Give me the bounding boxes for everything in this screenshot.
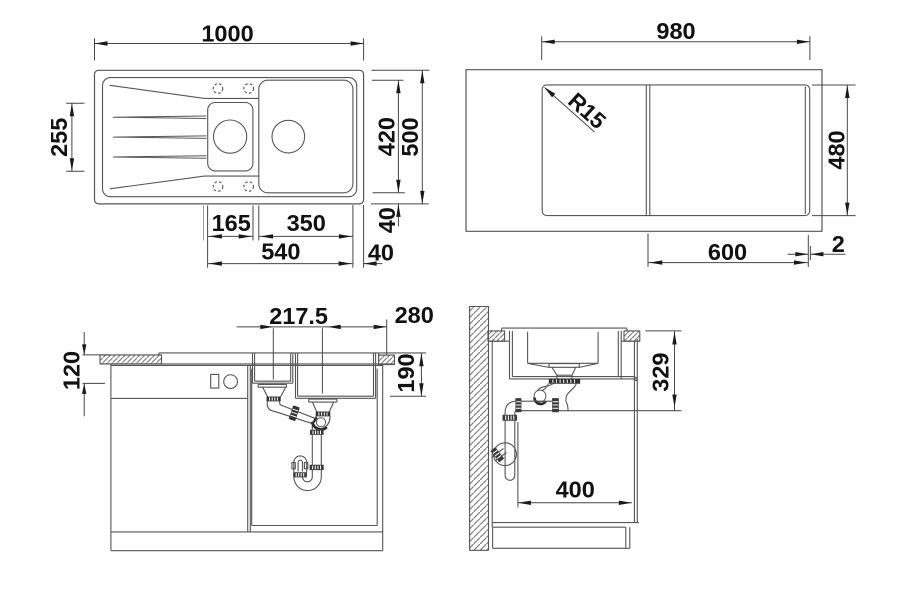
svg-text:420: 420 xyxy=(374,117,400,156)
svg-text:480: 480 xyxy=(823,130,849,169)
svg-text:400: 400 xyxy=(556,477,595,503)
svg-text:600: 600 xyxy=(708,239,747,265)
svg-text:R15: R15 xyxy=(563,88,610,134)
svg-text:217.5: 217.5 xyxy=(269,303,328,329)
svg-text:980: 980 xyxy=(656,18,695,44)
svg-text:255: 255 xyxy=(46,118,72,157)
svg-text:350: 350 xyxy=(287,210,326,236)
svg-text:2: 2 xyxy=(832,231,845,257)
svg-text:40: 40 xyxy=(374,207,400,233)
svg-text:1000: 1000 xyxy=(201,20,253,46)
svg-text:540: 540 xyxy=(261,238,300,264)
svg-text:500: 500 xyxy=(397,117,423,156)
svg-text:329: 329 xyxy=(648,352,674,391)
svg-text:120: 120 xyxy=(59,351,85,390)
svg-text:165: 165 xyxy=(212,210,251,236)
svg-text:280: 280 xyxy=(395,302,434,328)
svg-text:40: 40 xyxy=(368,239,394,265)
svg-text:190: 190 xyxy=(393,353,419,392)
